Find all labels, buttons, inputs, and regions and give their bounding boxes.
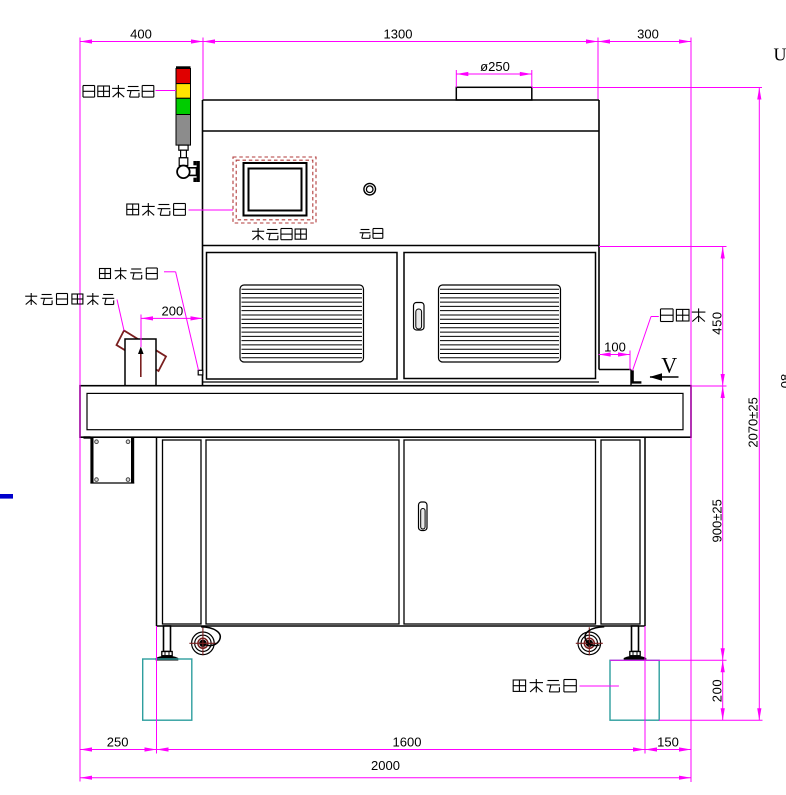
svg-text:1600: 1600 (393, 735, 422, 750)
svg-text:200: 200 (162, 303, 184, 318)
svg-text:1300: 1300 (384, 27, 413, 42)
svg-text:100: 100 (604, 340, 626, 355)
svg-text:200: 200 (710, 679, 725, 703)
svg-text:08: 08 (778, 374, 786, 388)
svg-text:V: V (661, 353, 677, 378)
svg-text:450: 450 (710, 311, 725, 335)
svg-text:ø250: ø250 (480, 59, 510, 74)
svg-text:150: 150 (657, 735, 679, 750)
svg-text:2070±25: 2070±25 (746, 397, 761, 448)
svg-text:900±25: 900±25 (710, 499, 725, 542)
svg-text:300: 300 (637, 27, 659, 42)
svg-text:2000: 2000 (371, 758, 400, 773)
svg-text:400: 400 (130, 27, 152, 42)
svg-text:UV: UV (774, 45, 786, 65)
svg-text:250: 250 (107, 735, 129, 750)
